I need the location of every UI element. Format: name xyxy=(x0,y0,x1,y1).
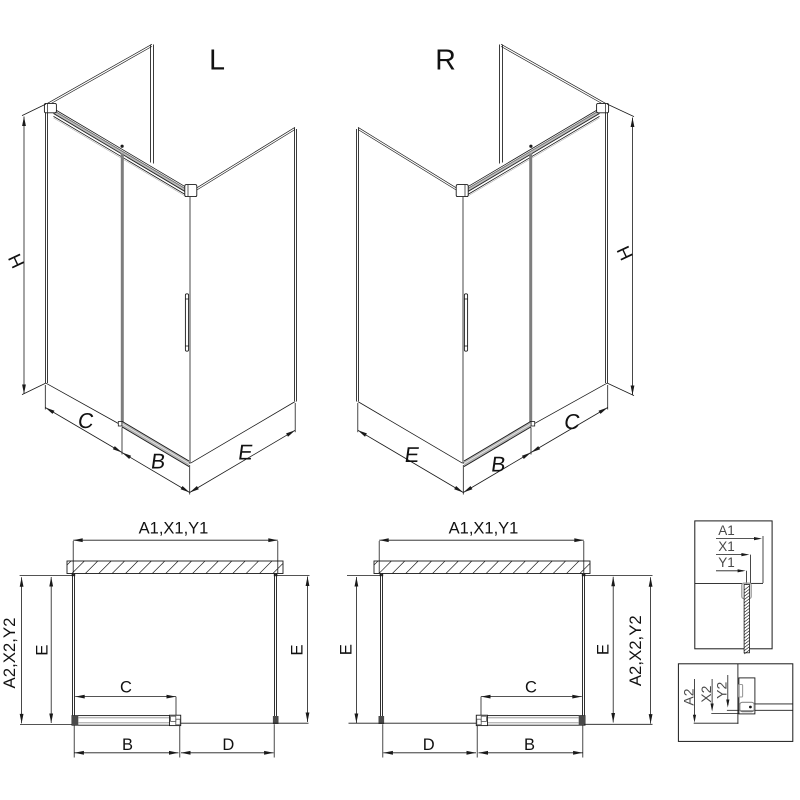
svg-text:A2,X2,Y2: A2,X2,Y2 xyxy=(0,618,19,689)
svg-text:B: B xyxy=(122,736,133,754)
svg-text:X1: X1 xyxy=(718,539,735,554)
svg-text:R: R xyxy=(435,45,456,77)
svg-text:A1,X1,Y1: A1,X1,Y1 xyxy=(449,520,519,538)
svg-text:E: E xyxy=(33,645,52,656)
svg-text:E: E xyxy=(337,644,356,655)
svg-text:A1,X1,Y1: A1,X1,Y1 xyxy=(139,520,209,538)
svg-text:X2: X2 xyxy=(698,685,714,702)
svg-text:A1: A1 xyxy=(718,523,735,538)
svg-text:C: C xyxy=(525,679,537,697)
svg-text:L: L xyxy=(209,45,225,77)
svg-text:B: B xyxy=(524,736,535,754)
svg-text:D: D xyxy=(423,736,435,754)
svg-text:E: E xyxy=(288,644,307,655)
svg-text:E: E xyxy=(594,644,613,655)
svg-text:D: D xyxy=(222,736,234,754)
svg-text:Y2: Y2 xyxy=(713,682,729,699)
svg-text:Y1: Y1 xyxy=(718,555,735,570)
svg-text:C: C xyxy=(120,679,132,697)
svg-text:A2,X2,Y2: A2,X2,Y2 xyxy=(626,615,645,686)
